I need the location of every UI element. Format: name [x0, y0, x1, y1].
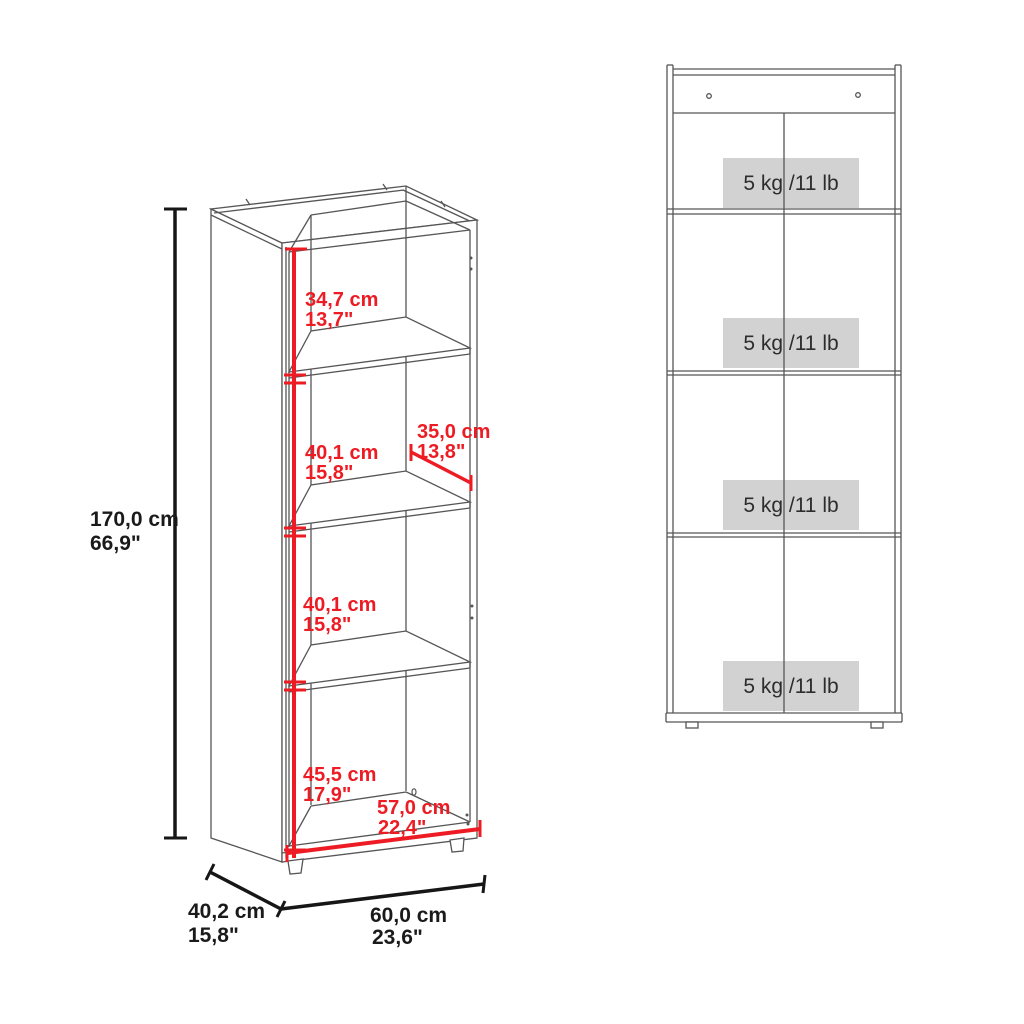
compartment-3-in-label: 15,8" — [303, 614, 351, 636]
cam-hole-right — [856, 93, 861, 98]
front-bottom-band — [666, 713, 902, 722]
front-foot-left — [686, 722, 698, 728]
overall-height-cm-label: 170,0 cm — [90, 508, 179, 531]
front-view: 5 kg /11 lb 5 kg /11 lb 5 kg /11 lb 5 kg… — [666, 65, 902, 728]
overall-width-cm-label: 60,0 cm — [370, 904, 447, 927]
shelf-depth-in-label: 13,8" — [417, 441, 465, 463]
furniture-dimension-diagram: 34,7 cm 13,7" 40,1 cm 15,8" 35,0 cm 13,8… — [0, 0, 1024, 1024]
overall-depth-cm-label: 40,2 cm — [188, 900, 265, 923]
capacity-label-4: 5 kg /11 lb — [743, 675, 838, 698]
compartment-1-in-label: 13,7" — [305, 309, 353, 331]
compartment-4-in-label: 17,9" — [303, 784, 351, 806]
shelf-depth-cm-label: 35,0 cm — [417, 421, 490, 443]
interior-width-in-label: 22,4" — [378, 817, 426, 839]
capacity-label-2: 5 kg /11 lb — [743, 332, 838, 355]
front-foot-right — [871, 722, 883, 728]
cabinet-left-panel — [211, 209, 282, 862]
isometric-view: 34,7 cm 13,7" 40,1 cm 15,8" 35,0 cm 13,8… — [90, 184, 490, 949]
compartment-2-cm-label: 40,1 cm — [305, 442, 378, 464]
iso-foot-left — [288, 859, 303, 874]
capacity-label-3: 5 kg /11 lb — [743, 494, 838, 517]
cam-hole-left — [707, 94, 712, 99]
overall-depth-in-label: 15,8" — [188, 924, 239, 947]
compartment-4-cm-label: 45,5 cm — [303, 764, 376, 786]
interior-width-cm-label: 57,0 cm — [377, 797, 450, 819]
iso-foot-right — [450, 838, 464, 852]
diagram-svg: 34,7 cm 13,7" 40,1 cm 15,8" 35,0 cm 13,8… — [0, 0, 1024, 1024]
capacity-label-1: 5 kg /11 lb — [743, 172, 838, 195]
compartment-3-cm-label: 40,1 cm — [303, 594, 376, 616]
compartment-1-cm-label: 34,7 cm — [305, 289, 378, 311]
overall-width-in-label: 23,6" — [372, 926, 423, 949]
compartment-2-in-label: 15,8" — [305, 462, 353, 484]
overall-height-in-label: 66,9" — [90, 532, 141, 555]
